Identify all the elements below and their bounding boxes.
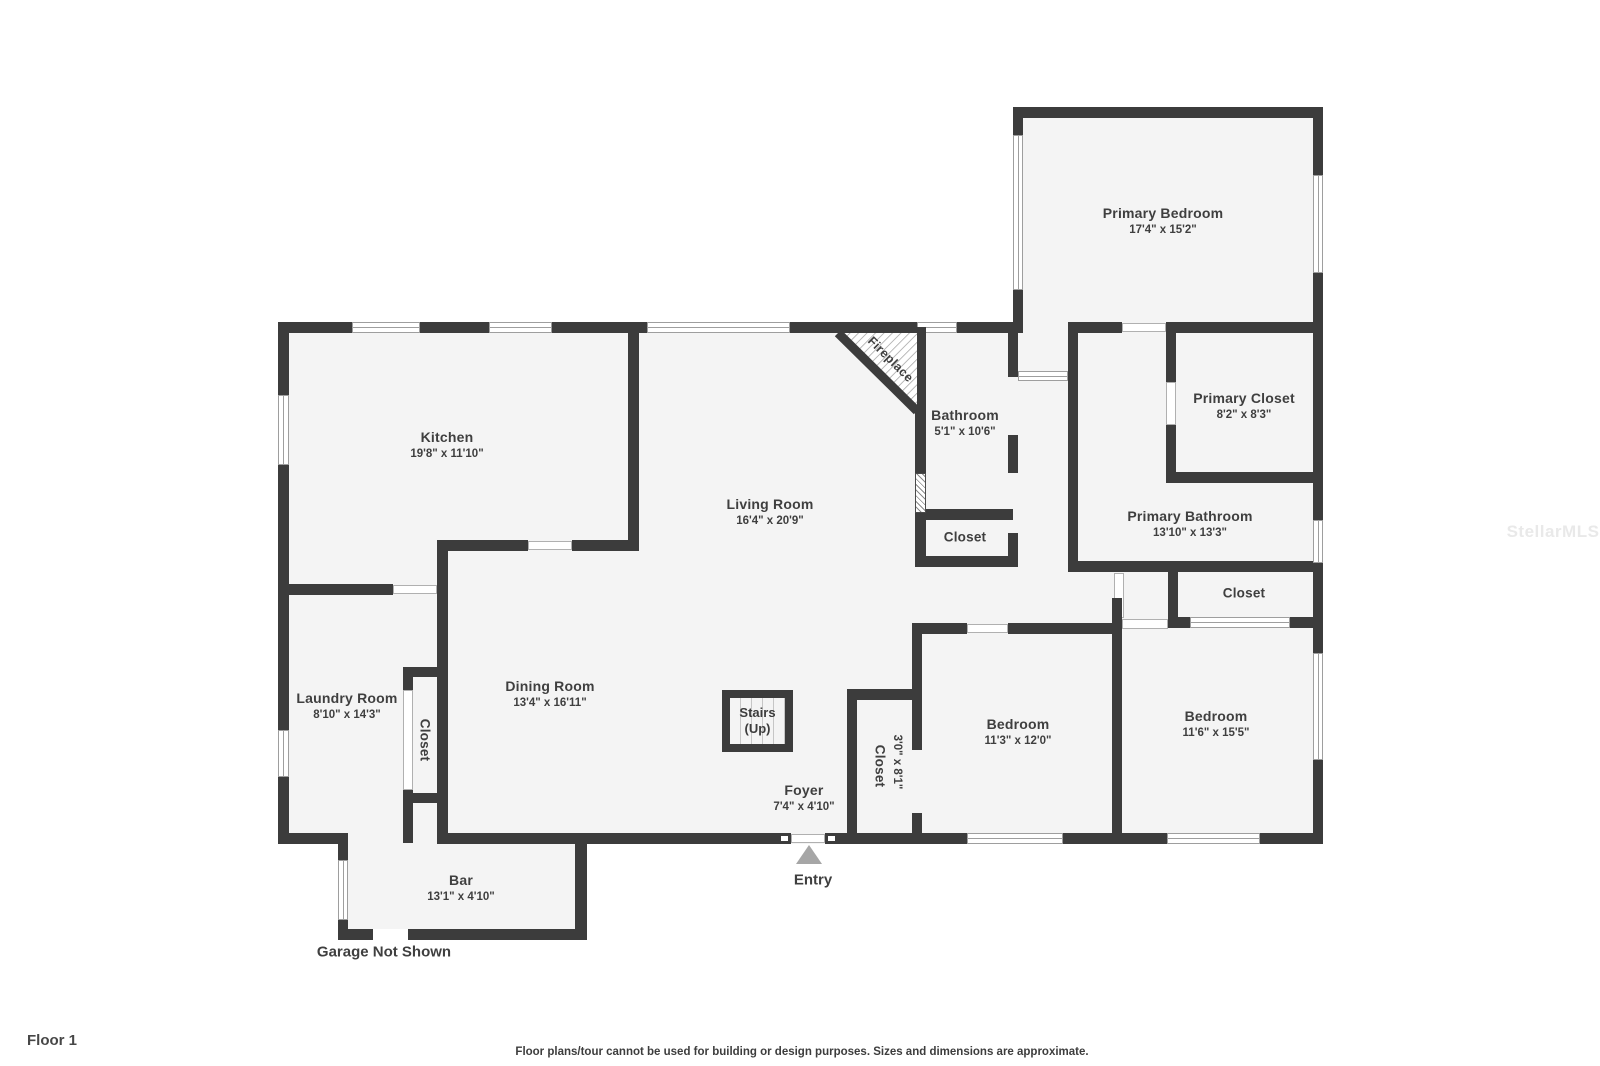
- wall-segment: [278, 322, 289, 395]
- room-label-laundry-closet: Closet: [416, 719, 433, 761]
- stairs-label-line1: Stairs: [739, 705, 775, 721]
- wall-segment: [1313, 760, 1323, 844]
- room-label-bathroom: Bathroom 5'1" x 10'6": [931, 407, 999, 439]
- window: [1013, 135, 1023, 290]
- room-label-bathroom-closet: Closet: [944, 530, 986, 547]
- wall-segment: [1013, 107, 1023, 135]
- wall-segment: [278, 465, 289, 730]
- wall-segment: [838, 833, 967, 844]
- wall-segment: [403, 790, 413, 843]
- wall-segment: [1313, 273, 1323, 520]
- wall-segment: [437, 540, 528, 551]
- hall-door: [1018, 371, 1068, 381]
- wall-segment: [278, 584, 393, 595]
- wall-segment: [1166, 333, 1176, 382]
- room-label-bedroom-right: Bedroom 11'6" x 15'5": [1183, 708, 1250, 740]
- entry-arrow-icon: [796, 845, 822, 864]
- stellar-mls-watermark: StellarMLS: [1507, 522, 1600, 542]
- room-label-dining-room: Dining Room 13'4" x 16'11": [505, 678, 594, 710]
- wall-segment: [1166, 472, 1323, 483]
- wall-segment: [847, 689, 917, 700]
- wall-segment: [437, 833, 778, 844]
- entry-jamb-inner: [828, 836, 835, 841]
- floor-plan: Fireplace Stairs (Up) Entry Garage Not S…: [0, 0, 1600, 1066]
- door-opening: [528, 541, 572, 550]
- wall-segment: [628, 322, 639, 551]
- room-label-laundry: Laundry Room 8'10" x 14'3": [296, 690, 397, 722]
- entry-opening: [791, 834, 825, 843]
- room-label-entry-closet-name: Closet: [871, 745, 888, 787]
- floor-number-label: Floor 1: [27, 1032, 77, 1049]
- stairs-label-line2: (Up): [745, 721, 771, 737]
- wall-segment: [1068, 333, 1078, 561]
- wall-segment: [575, 833, 587, 940]
- room-label-bar: Bar 13'1" x 4'10": [427, 872, 495, 904]
- wall-segment: [1313, 563, 1323, 653]
- bathroom-door-hatch: [915, 473, 926, 513]
- door-opening: [373, 929, 408, 940]
- wall-segment: [1013, 290, 1023, 333]
- wall-segment: [437, 540, 448, 844]
- door-opening: [1122, 619, 1168, 629]
- window: [1313, 175, 1323, 273]
- wall-segment: [408, 929, 587, 940]
- entry-label: Entry: [794, 872, 832, 889]
- wall-segment: [1068, 322, 1122, 333]
- window: [967, 833, 1063, 844]
- wall-segment: [1112, 598, 1122, 844]
- wall-segment: [915, 513, 926, 567]
- entry-jamb-inner: [781, 836, 788, 841]
- wall-segment: [1008, 623, 1122, 634]
- window: [338, 860, 348, 920]
- disclaimer-text: Floor plans/tour cannot be used for buil…: [515, 1046, 1088, 1058]
- wall-segment: [420, 322, 489, 333]
- wall-segment: [847, 689, 857, 834]
- stairs-box: Stairs (Up): [722, 690, 793, 752]
- wall-segment: [915, 556, 1018, 567]
- door-opening: [1122, 323, 1166, 332]
- door-opening: [967, 624, 1008, 633]
- wall-segment: [957, 322, 1008, 333]
- window: [647, 322, 790, 333]
- room-label-bedroom-left: Bedroom 11'3" x 12'0": [985, 716, 1052, 748]
- window: [489, 322, 552, 333]
- window: [1313, 520, 1323, 563]
- wall-segment: [1008, 533, 1018, 567]
- wall-segment: [1168, 572, 1178, 628]
- wall-segment: [278, 322, 352, 333]
- wall-segment: [912, 623, 922, 750]
- wall-segment: [1068, 561, 1323, 572]
- wall-segment: [338, 920, 348, 940]
- room-label-primary-bathroom: Primary Bathroom 13'10" x 13'3": [1127, 508, 1252, 540]
- wall-segment: [403, 667, 413, 690]
- wall-segment: [912, 813, 922, 844]
- wall-segment: [1166, 322, 1323, 333]
- window: [278, 730, 289, 777]
- room-label-kitchen: Kitchen 19'8" x 11'10": [410, 429, 483, 461]
- wall-segment: [1008, 435, 1018, 473]
- closet-door: [403, 690, 413, 790]
- room-label-primary-closet: Primary Closet 8'2" x 8'3": [1193, 390, 1295, 422]
- wall-segment: [1313, 107, 1323, 175]
- sliding-door: [1190, 617, 1290, 628]
- garage-note: Garage Not Shown: [317, 944, 451, 961]
- window: [1313, 653, 1323, 760]
- door-opening: [393, 585, 437, 594]
- window: [352, 322, 420, 333]
- room-label-primary-hall-closet: Closet: [1223, 586, 1265, 603]
- wall-segment: [1013, 107, 1323, 118]
- window: [278, 395, 289, 465]
- room-label-living-room: Living Room 16'4" x 20'9": [727, 496, 814, 528]
- wall-segment: [338, 833, 348, 860]
- room-label-foyer: Foyer 7'4" x 4'10": [773, 782, 834, 814]
- wall-segment: [920, 509, 1013, 520]
- room-label-entry-closet-dims: 3'0" x 8'1": [890, 735, 904, 790]
- window: [1167, 833, 1260, 844]
- wall-segment: [1166, 425, 1176, 472]
- room-label-primary-bedroom: Primary Bedroom 17'4" x 15'2": [1103, 205, 1223, 237]
- closet-door: [1166, 382, 1176, 425]
- wall-segment: [278, 777, 289, 844]
